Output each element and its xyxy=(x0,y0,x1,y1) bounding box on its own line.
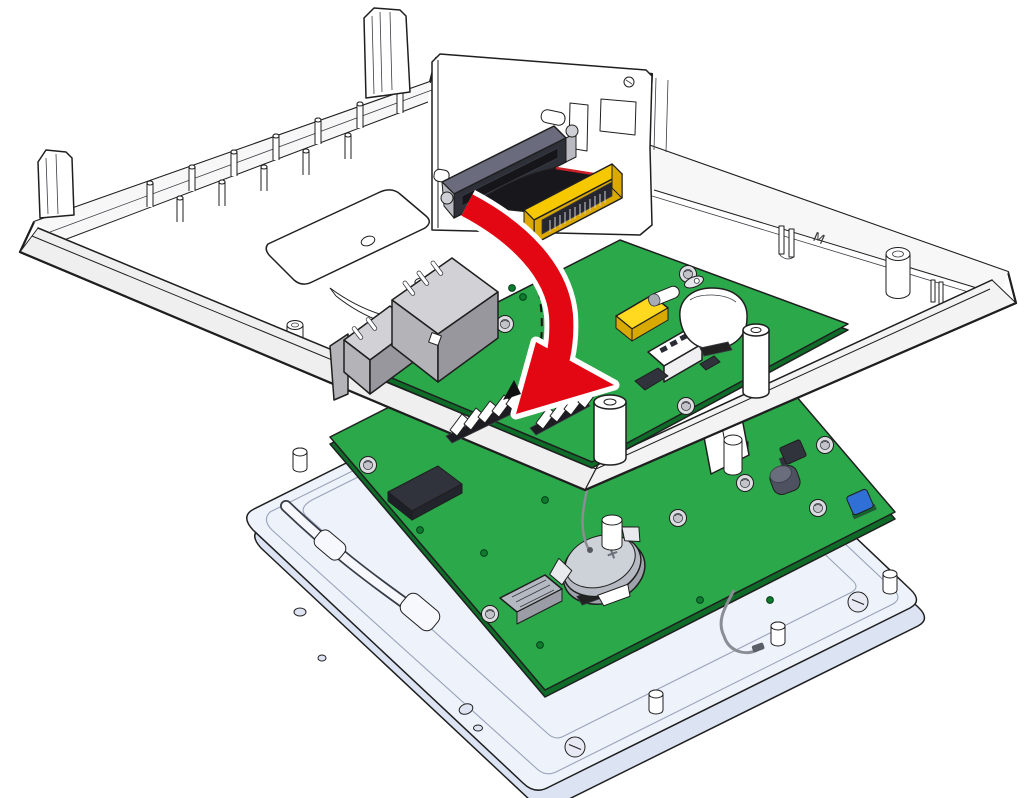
frame-slot-screw xyxy=(848,592,868,612)
board-screw xyxy=(817,437,834,454)
frame-pin xyxy=(293,448,307,472)
socket-ear-screw xyxy=(566,125,578,137)
frame-pin xyxy=(649,690,663,714)
board-screw xyxy=(678,398,695,415)
screw-boss xyxy=(886,248,910,299)
board-screw xyxy=(670,510,687,527)
frame-slot-screw xyxy=(565,737,585,757)
via xyxy=(481,550,488,557)
standoff-cylinder xyxy=(743,324,769,398)
panel-hole xyxy=(600,99,636,135)
frame-hole xyxy=(318,655,326,661)
board-screw xyxy=(360,457,377,474)
wire-end xyxy=(587,547,593,553)
board-screw xyxy=(737,475,754,492)
board-screw xyxy=(497,316,514,333)
assembly-illustration: M xyxy=(0,0,1024,798)
din-tab-top xyxy=(364,8,410,98)
frame-pin xyxy=(883,570,897,594)
via xyxy=(767,597,774,604)
board-screw xyxy=(482,606,499,623)
via xyxy=(417,527,424,534)
via xyxy=(509,285,516,292)
frame-pin xyxy=(771,622,785,646)
via xyxy=(520,294,527,301)
din-tab-left xyxy=(38,150,74,218)
standoff-cylinder xyxy=(594,395,626,465)
frame-hole xyxy=(294,608,306,616)
via xyxy=(537,642,544,649)
via xyxy=(542,497,549,504)
via xyxy=(697,597,704,604)
frame-hole xyxy=(474,725,483,731)
socket-ear-screw xyxy=(441,192,453,204)
illustration-page: M xyxy=(0,0,1024,798)
board-screw xyxy=(810,500,827,517)
